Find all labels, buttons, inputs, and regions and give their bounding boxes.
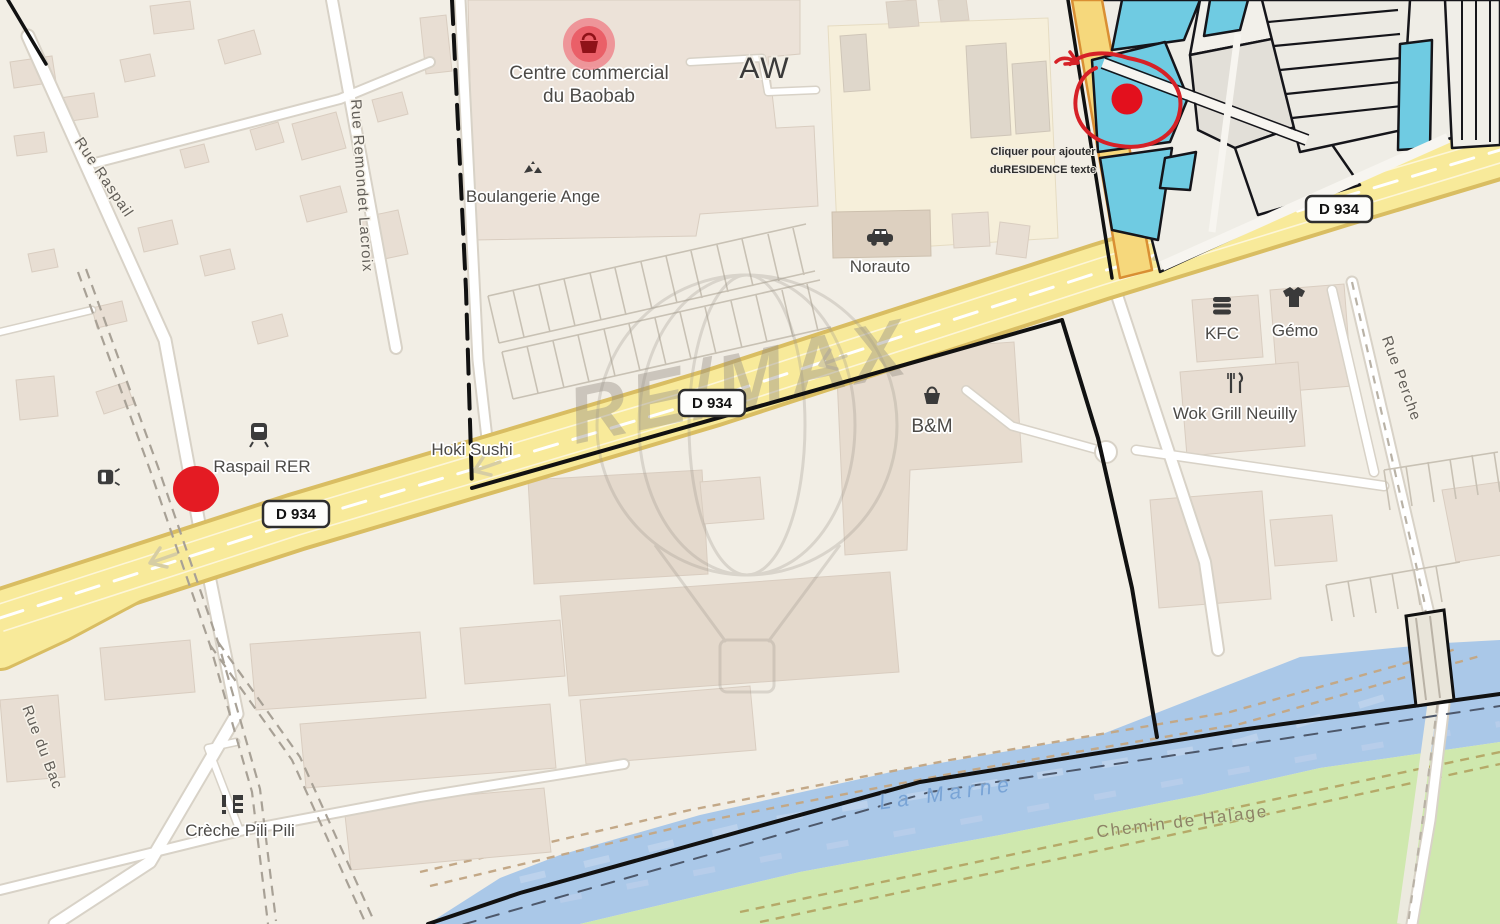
poi-label-kfc: KFC (1205, 324, 1239, 343)
svg-text:D 934: D 934 (692, 395, 733, 412)
basket-icon (580, 41, 598, 53)
road-shield-d934: D 934 (263, 501, 329, 527)
bridge (1406, 610, 1454, 706)
poi-label-wok-grill: Wok Grill Neuilly (1173, 404, 1298, 423)
map-canvas[interactable]: RE/MAX (0, 0, 1500, 924)
burger-icon (1213, 297, 1231, 315)
poi-label-raspail-rer: Raspail RER (213, 457, 310, 476)
road-shield-d934: D 934 (679, 390, 745, 416)
poi-label-aw: AW (739, 52, 790, 85)
nursery-icon (222, 795, 244, 814)
road-shield-d934: D 934 (1306, 196, 1372, 222)
poi-label-bm: B&M (911, 416, 952, 437)
poi-label-centre-commercial-2: du Baobab (543, 86, 635, 107)
svg-text:D 934: D 934 (1319, 201, 1360, 218)
poi-label-creche: Crèche Pili Pili (185, 821, 295, 840)
poi-label-gemo: Gémo (1272, 321, 1318, 340)
red-dot-marker[interactable] (173, 466, 219, 512)
add-text-note-line1[interactable]: Cliquer pour ajouter (990, 146, 1096, 158)
poi-label-hoki-sushi: Hoki Sushi (431, 440, 512, 459)
add-text-note-line2[interactable]: duRESIDENCE texte (990, 164, 1096, 176)
poi-label-norauto: Norauto (850, 257, 910, 276)
red-dot-marker[interactable] (1112, 84, 1143, 115)
shopping-centre-marker[interactable] (563, 18, 615, 70)
poi-label-boulangerie: Boulangerie Ange (466, 187, 600, 206)
svg-text:D 934: D 934 (276, 506, 317, 523)
